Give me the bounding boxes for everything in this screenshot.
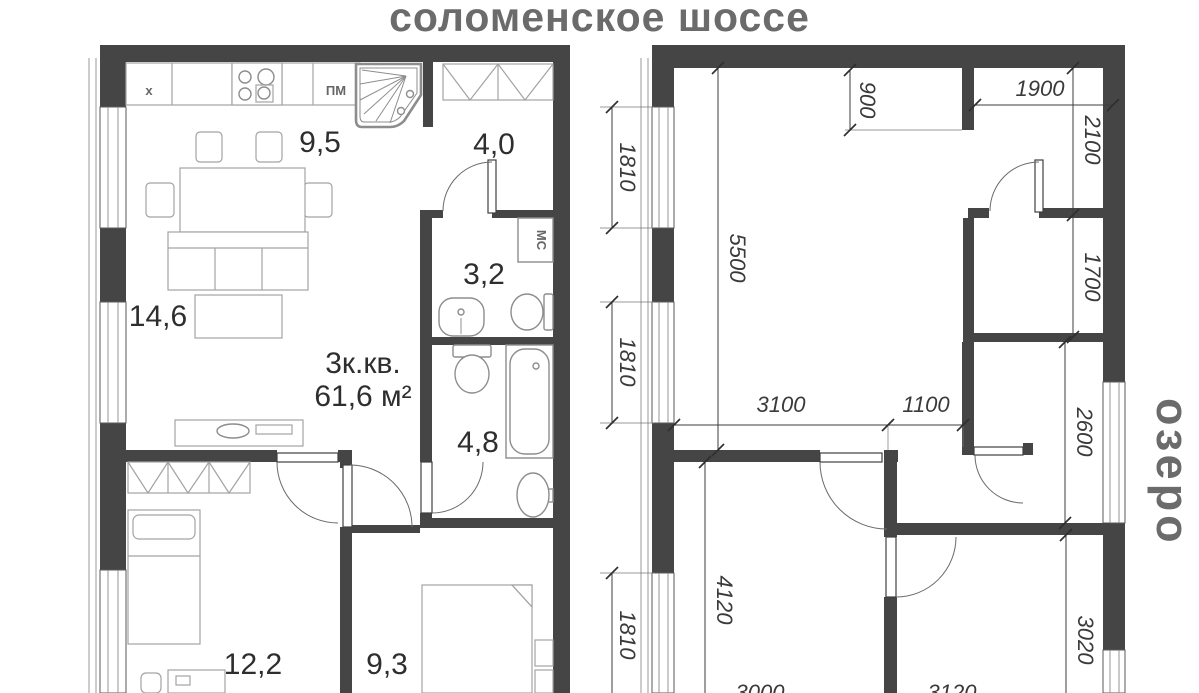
kitchen-counter: х ПМ <box>126 63 360 105</box>
apartment-area: 61,6 м² <box>314 380 411 413</box>
hood-label: х <box>145 83 153 98</box>
bedroom2-furniture <box>422 585 553 693</box>
window <box>100 302 126 423</box>
room-area-bedroom-right: 9,3 <box>366 648 408 681</box>
floor-plan-page: соломенское шоссе озеро <box>0 0 1199 693</box>
window <box>652 573 674 693</box>
dim-3020: 3020 <box>1073 616 1098 666</box>
window <box>1103 382 1125 523</box>
room-area-living: 14,6 <box>129 300 187 333</box>
dim-3120: 3120 <box>928 680 978 693</box>
room-area-wc-large: 4,8 <box>457 426 499 459</box>
apartment-type: 3к.кв. <box>325 347 401 380</box>
dimension-texts: 1810 1810 1810 5500 900 1900 2100 1700 2… <box>615 76 1105 693</box>
room-area-hallway: 4,0 <box>473 128 515 161</box>
stove-icon <box>232 63 282 105</box>
dim-900: 900 <box>855 82 880 119</box>
dim-3100: 3100 <box>757 392 807 417</box>
right-plan: 1810 1810 1810 5500 900 1900 2100 1700 2… <box>600 45 1125 693</box>
tv-stand-icon <box>175 420 303 446</box>
corner-sink-icon <box>356 64 421 127</box>
window <box>100 570 126 693</box>
dim-1810-bottom: 1810 <box>615 611 640 661</box>
window <box>100 107 126 228</box>
dim-1810-mid: 1810 <box>615 338 640 388</box>
dim-1810-top: 1810 <box>615 143 640 193</box>
dim-2600: 2600 <box>1072 407 1097 458</box>
dim-1100: 1100 <box>902 392 950 417</box>
dishwasher-label: ПМ <box>326 83 346 98</box>
window <box>652 107 674 228</box>
dim-3000: 3000 <box>736 680 786 693</box>
dim-5500: 5500 <box>725 234 750 284</box>
dim-4120: 4120 <box>712 576 737 626</box>
room-area-wc-small: 3,2 <box>463 258 505 291</box>
sofa-icon <box>168 232 308 290</box>
dimension-lines <box>606 62 1119 693</box>
dim-1700: 1700 <box>1080 253 1105 303</box>
wardrobe-icon <box>443 64 553 100</box>
coffee-table-icon <box>195 295 282 338</box>
left-plan: х ПМ <box>89 45 570 693</box>
dim-1900: 1900 <box>1016 76 1066 101</box>
window <box>652 302 674 423</box>
dim-2100: 2100 <box>1080 115 1105 166</box>
washer-label: МС <box>534 230 549 251</box>
room-area-kitchen: 9,5 <box>299 126 341 159</box>
floor-plan-drawing: х ПМ <box>0 0 1199 693</box>
window <box>1103 650 1125 693</box>
room-area-bedroom-left: 12,2 <box>224 648 282 681</box>
